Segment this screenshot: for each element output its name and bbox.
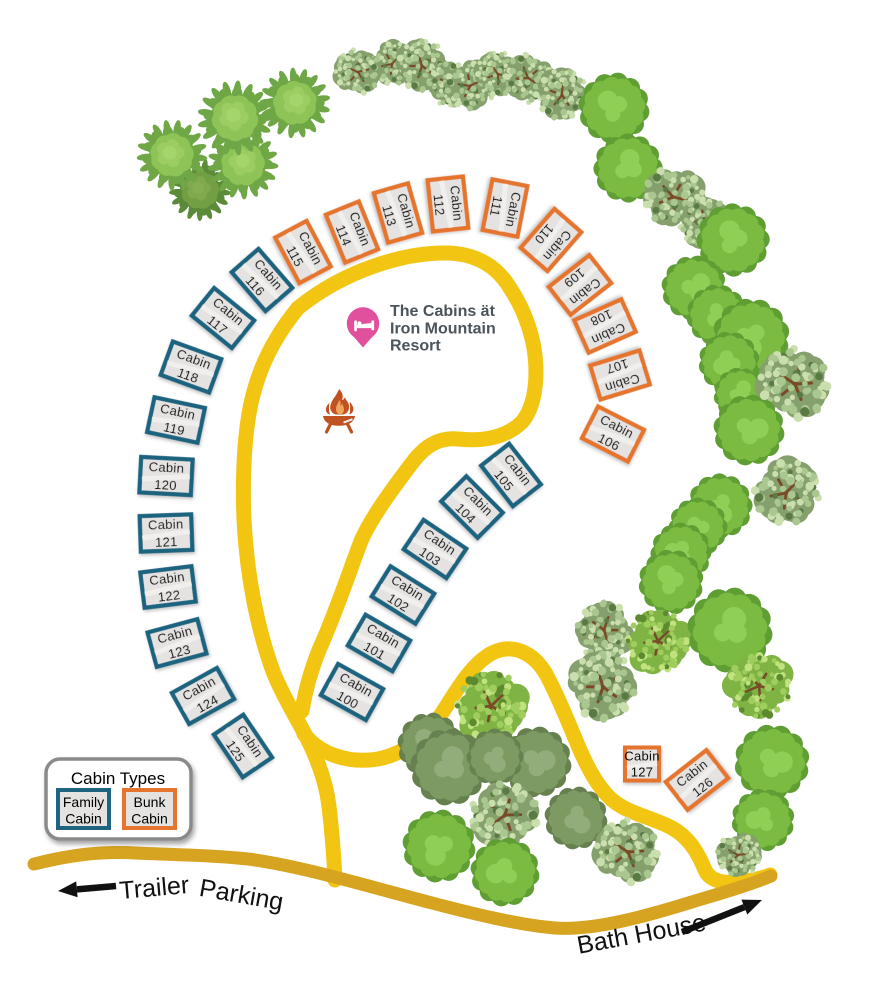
svg-text:112: 112 <box>430 193 447 216</box>
svg-text:Cabin: Cabin <box>624 749 659 764</box>
svg-text:Cabin: Cabin <box>131 811 168 827</box>
svg-text:122: 122 <box>157 587 181 605</box>
svg-text:Resort: Resort <box>390 338 441 355</box>
svg-text:Bunk: Bunk <box>134 794 167 810</box>
svg-text:The Cabins ät: The Cabins ät <box>390 303 496 320</box>
svg-text:121: 121 <box>155 534 178 550</box>
svg-text:Cabin: Cabin <box>148 459 184 476</box>
svg-text:Cabin: Cabin <box>65 811 102 827</box>
svg-text:Iron Mountain: Iron Mountain <box>390 321 496 338</box>
svg-text:Family: Family <box>63 794 104 810</box>
svg-text:Cabin: Cabin <box>148 516 184 532</box>
svg-text:120: 120 <box>154 477 177 493</box>
svg-text:Cabin Types: Cabin Types <box>71 769 165 788</box>
svg-text:127: 127 <box>631 765 654 780</box>
